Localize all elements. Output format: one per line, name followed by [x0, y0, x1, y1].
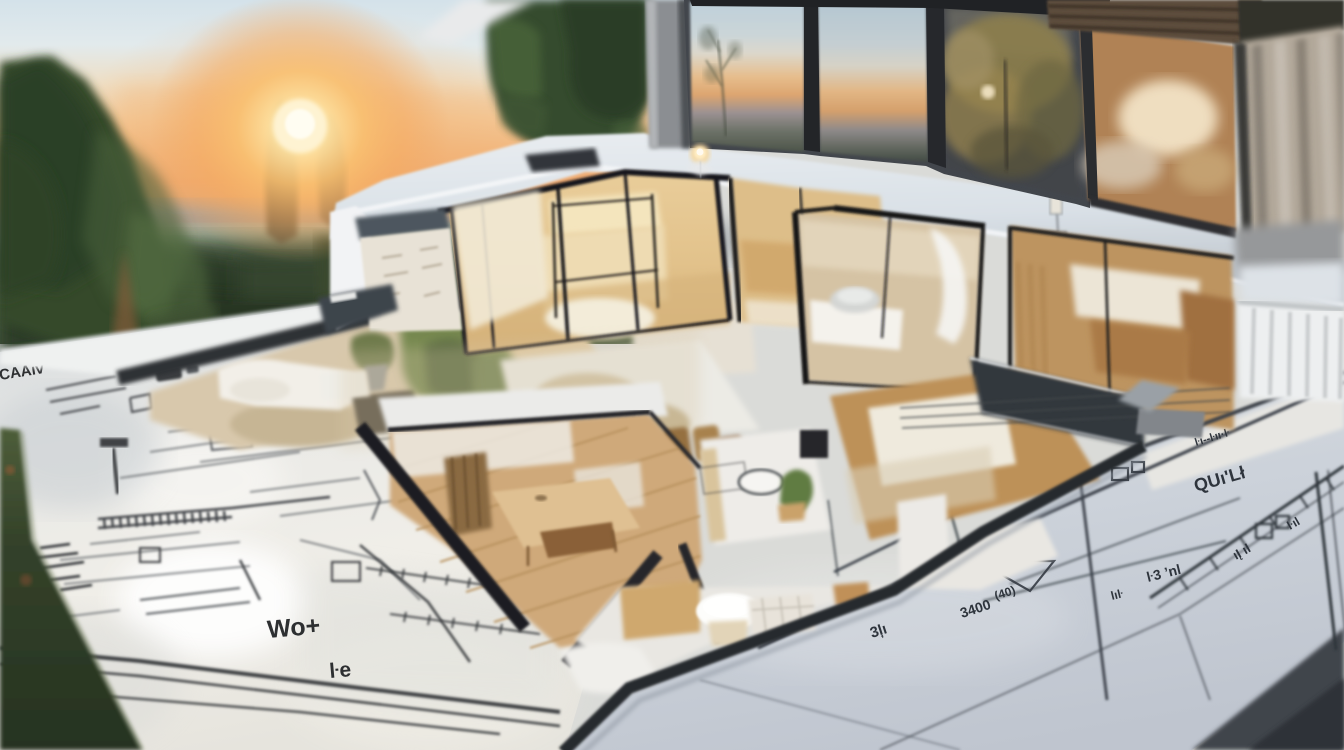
svg-text:Wo+: Wo+	[266, 611, 321, 644]
svg-text:ŀe: ŀe	[328, 658, 352, 683]
